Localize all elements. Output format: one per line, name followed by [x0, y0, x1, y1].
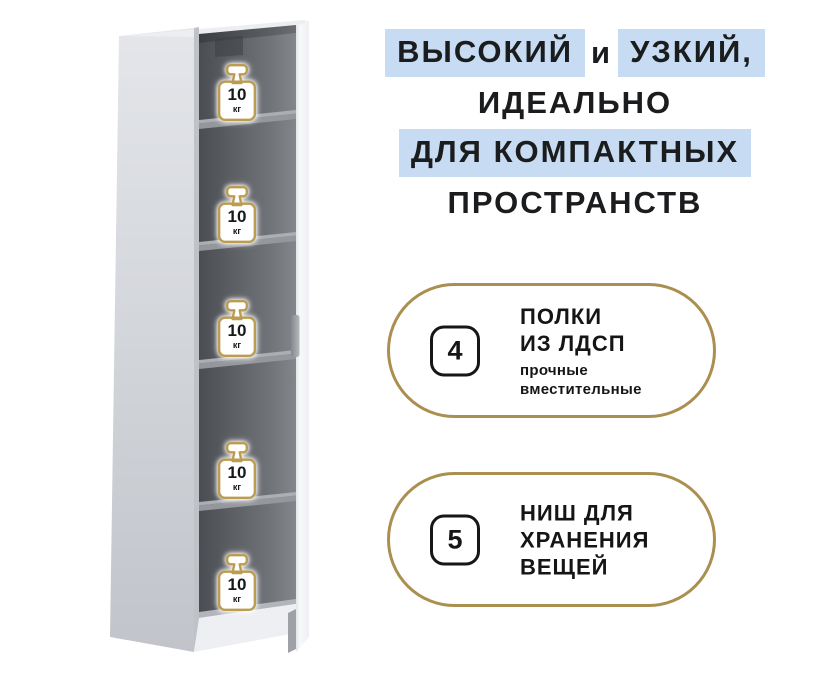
- capacity-unit: кг: [216, 341, 258, 350]
- cabinet-front-edge: [194, 27, 199, 651]
- headline-line-2: ИДЕАЛЬНО: [340, 78, 810, 128]
- capacity-value: 10: [216, 208, 258, 225]
- headline-highlight: УЗКИЙ,: [618, 29, 765, 77]
- cabinet-side-panel: [110, 28, 194, 652]
- feature-subtitle: вместительные: [520, 380, 642, 399]
- shelf-capacity-badge: 10 кг: [216, 553, 258, 612]
- door-bottom-inner-edge: [288, 609, 296, 653]
- capacity-unit: кг: [216, 483, 258, 492]
- shelf-capacity-badge: 10 кг: [216, 185, 258, 244]
- feature-count-box: 4: [430, 325, 480, 376]
- feature-count: 4: [447, 335, 462, 366]
- feature-badge-shelves: 4 ПОЛКИ ИЗ ЛДСП прочные вместительные: [387, 283, 716, 418]
- feature-count: 5: [447, 524, 462, 555]
- feature-badge-niches: 5 НИШ ДЛЯ ХРАНЕНИЯ ВЕЩЕЙ: [387, 472, 716, 607]
- headline-line-3: ДЛЯ КОМПАКТНЫХ: [340, 128, 810, 178]
- feature-text: ПОЛКИ ИЗ ЛДСП прочные вместительные: [520, 303, 642, 399]
- shelf-capacity-badge: 10 кг: [216, 63, 258, 122]
- capacity-unit: кг: [216, 595, 258, 604]
- headline-highlight: ВЫСОКИЙ: [385, 29, 585, 77]
- shelf-capacity-badge: 10 кг: [216, 299, 258, 358]
- headline: ВЫСОКИЙ и УЗКИЙ, ИДЕАЛЬНО ДЛЯ КОМПАКТНЫХ…: [340, 28, 810, 228]
- back-wall-shadow: [215, 36, 243, 57]
- capacity-value: 10: [216, 322, 258, 339]
- headline-plain: ПРОСТРАНСТВ: [448, 185, 703, 221]
- capacity-unit: кг: [216, 105, 258, 114]
- feature-title: ПОЛКИ: [520, 303, 642, 330]
- headline-plain: ИДЕАЛЬНО: [478, 85, 672, 121]
- product-infographic: 10 кг 10 кг 10 кг 10 кг 10 кг ВЫСОКИЙ и: [0, 0, 816, 700]
- shelf-capacity-badge: 10 кг: [216, 441, 258, 500]
- feature-title: ХРАНЕНИЯ: [520, 526, 649, 553]
- capacity-value: 10: [216, 576, 258, 593]
- headline-line-1: ВЫСОКИЙ и УЗКИЙ,: [340, 28, 810, 78]
- capacity-value: 10: [216, 464, 258, 481]
- feature-count-box: 5: [430, 514, 480, 565]
- door-handle: [291, 315, 300, 357]
- capacity-value: 10: [216, 86, 258, 103]
- headline-plain: и: [591, 35, 612, 71]
- feature-title: НИШ ДЛЯ: [520, 499, 649, 526]
- feature-title: ИЗ ЛДСП: [520, 330, 642, 357]
- capacity-unit: кг: [216, 227, 258, 236]
- headline-highlight: ДЛЯ КОМПАКТНЫХ: [399, 129, 751, 177]
- feature-subtitle: прочные: [520, 361, 642, 380]
- feature-text: НИШ ДЛЯ ХРАНЕНИЯ ВЕЩЕЙ: [520, 499, 649, 580]
- feature-title: ВЕЩЕЙ: [520, 553, 649, 580]
- headline-line-4: ПРОСТРАНСТВ: [340, 178, 810, 228]
